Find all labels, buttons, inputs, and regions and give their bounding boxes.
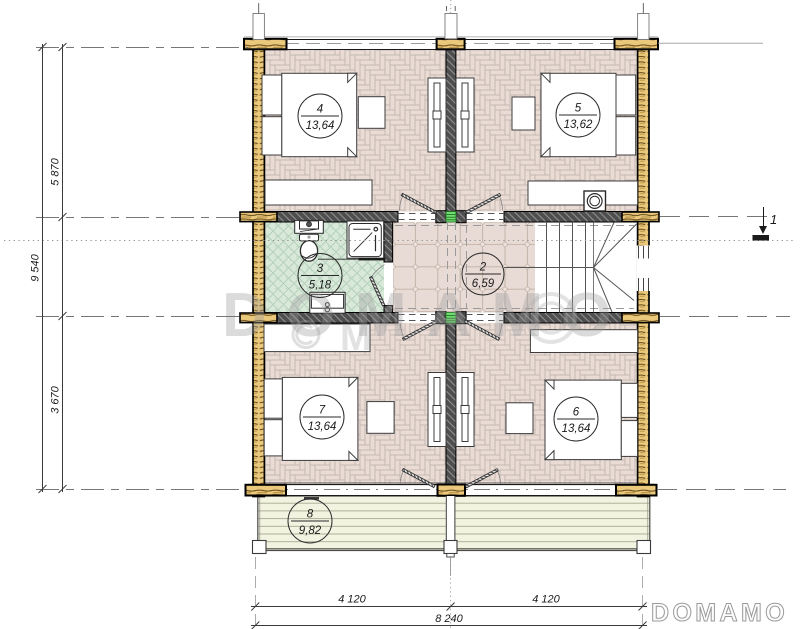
svg-text:5: 5: [575, 103, 582, 115]
svg-text:4 120: 4 120: [532, 594, 560, 606]
svg-text:6: 6: [573, 407, 580, 419]
svg-text:M: M: [340, 317, 372, 359]
svg-text:9 540: 9 540: [30, 253, 42, 281]
svg-text:13,64: 13,64: [306, 120, 335, 132]
svg-text:5,18: 5,18: [309, 280, 332, 292]
svg-text:13,64: 13,64: [308, 421, 337, 433]
svg-text:3: 3: [317, 263, 324, 275]
svg-text:6,59: 6,59: [472, 278, 495, 290]
svg-text:13,64: 13,64: [562, 423, 591, 435]
svg-text:7: 7: [319, 405, 326, 417]
svg-text:8 240: 8 240: [435, 613, 463, 625]
svg-text:9,82: 9,82: [299, 525, 322, 537]
svg-text:8: 8: [307, 509, 314, 521]
svg-text:5 870: 5 870: [50, 157, 62, 185]
svg-text:DOMAMO: DOMAMO: [222, 281, 631, 350]
svg-text:DOMAMO: DOMAMO: [651, 599, 788, 627]
svg-text:4: 4: [317, 104, 323, 116]
svg-text:3 670: 3 670: [50, 385, 62, 413]
svg-text:13,62: 13,62: [564, 119, 593, 131]
svg-text:4 120: 4 120: [338, 594, 366, 606]
svg-text:2: 2: [479, 262, 487, 274]
svg-text:1: 1: [770, 212, 777, 227]
